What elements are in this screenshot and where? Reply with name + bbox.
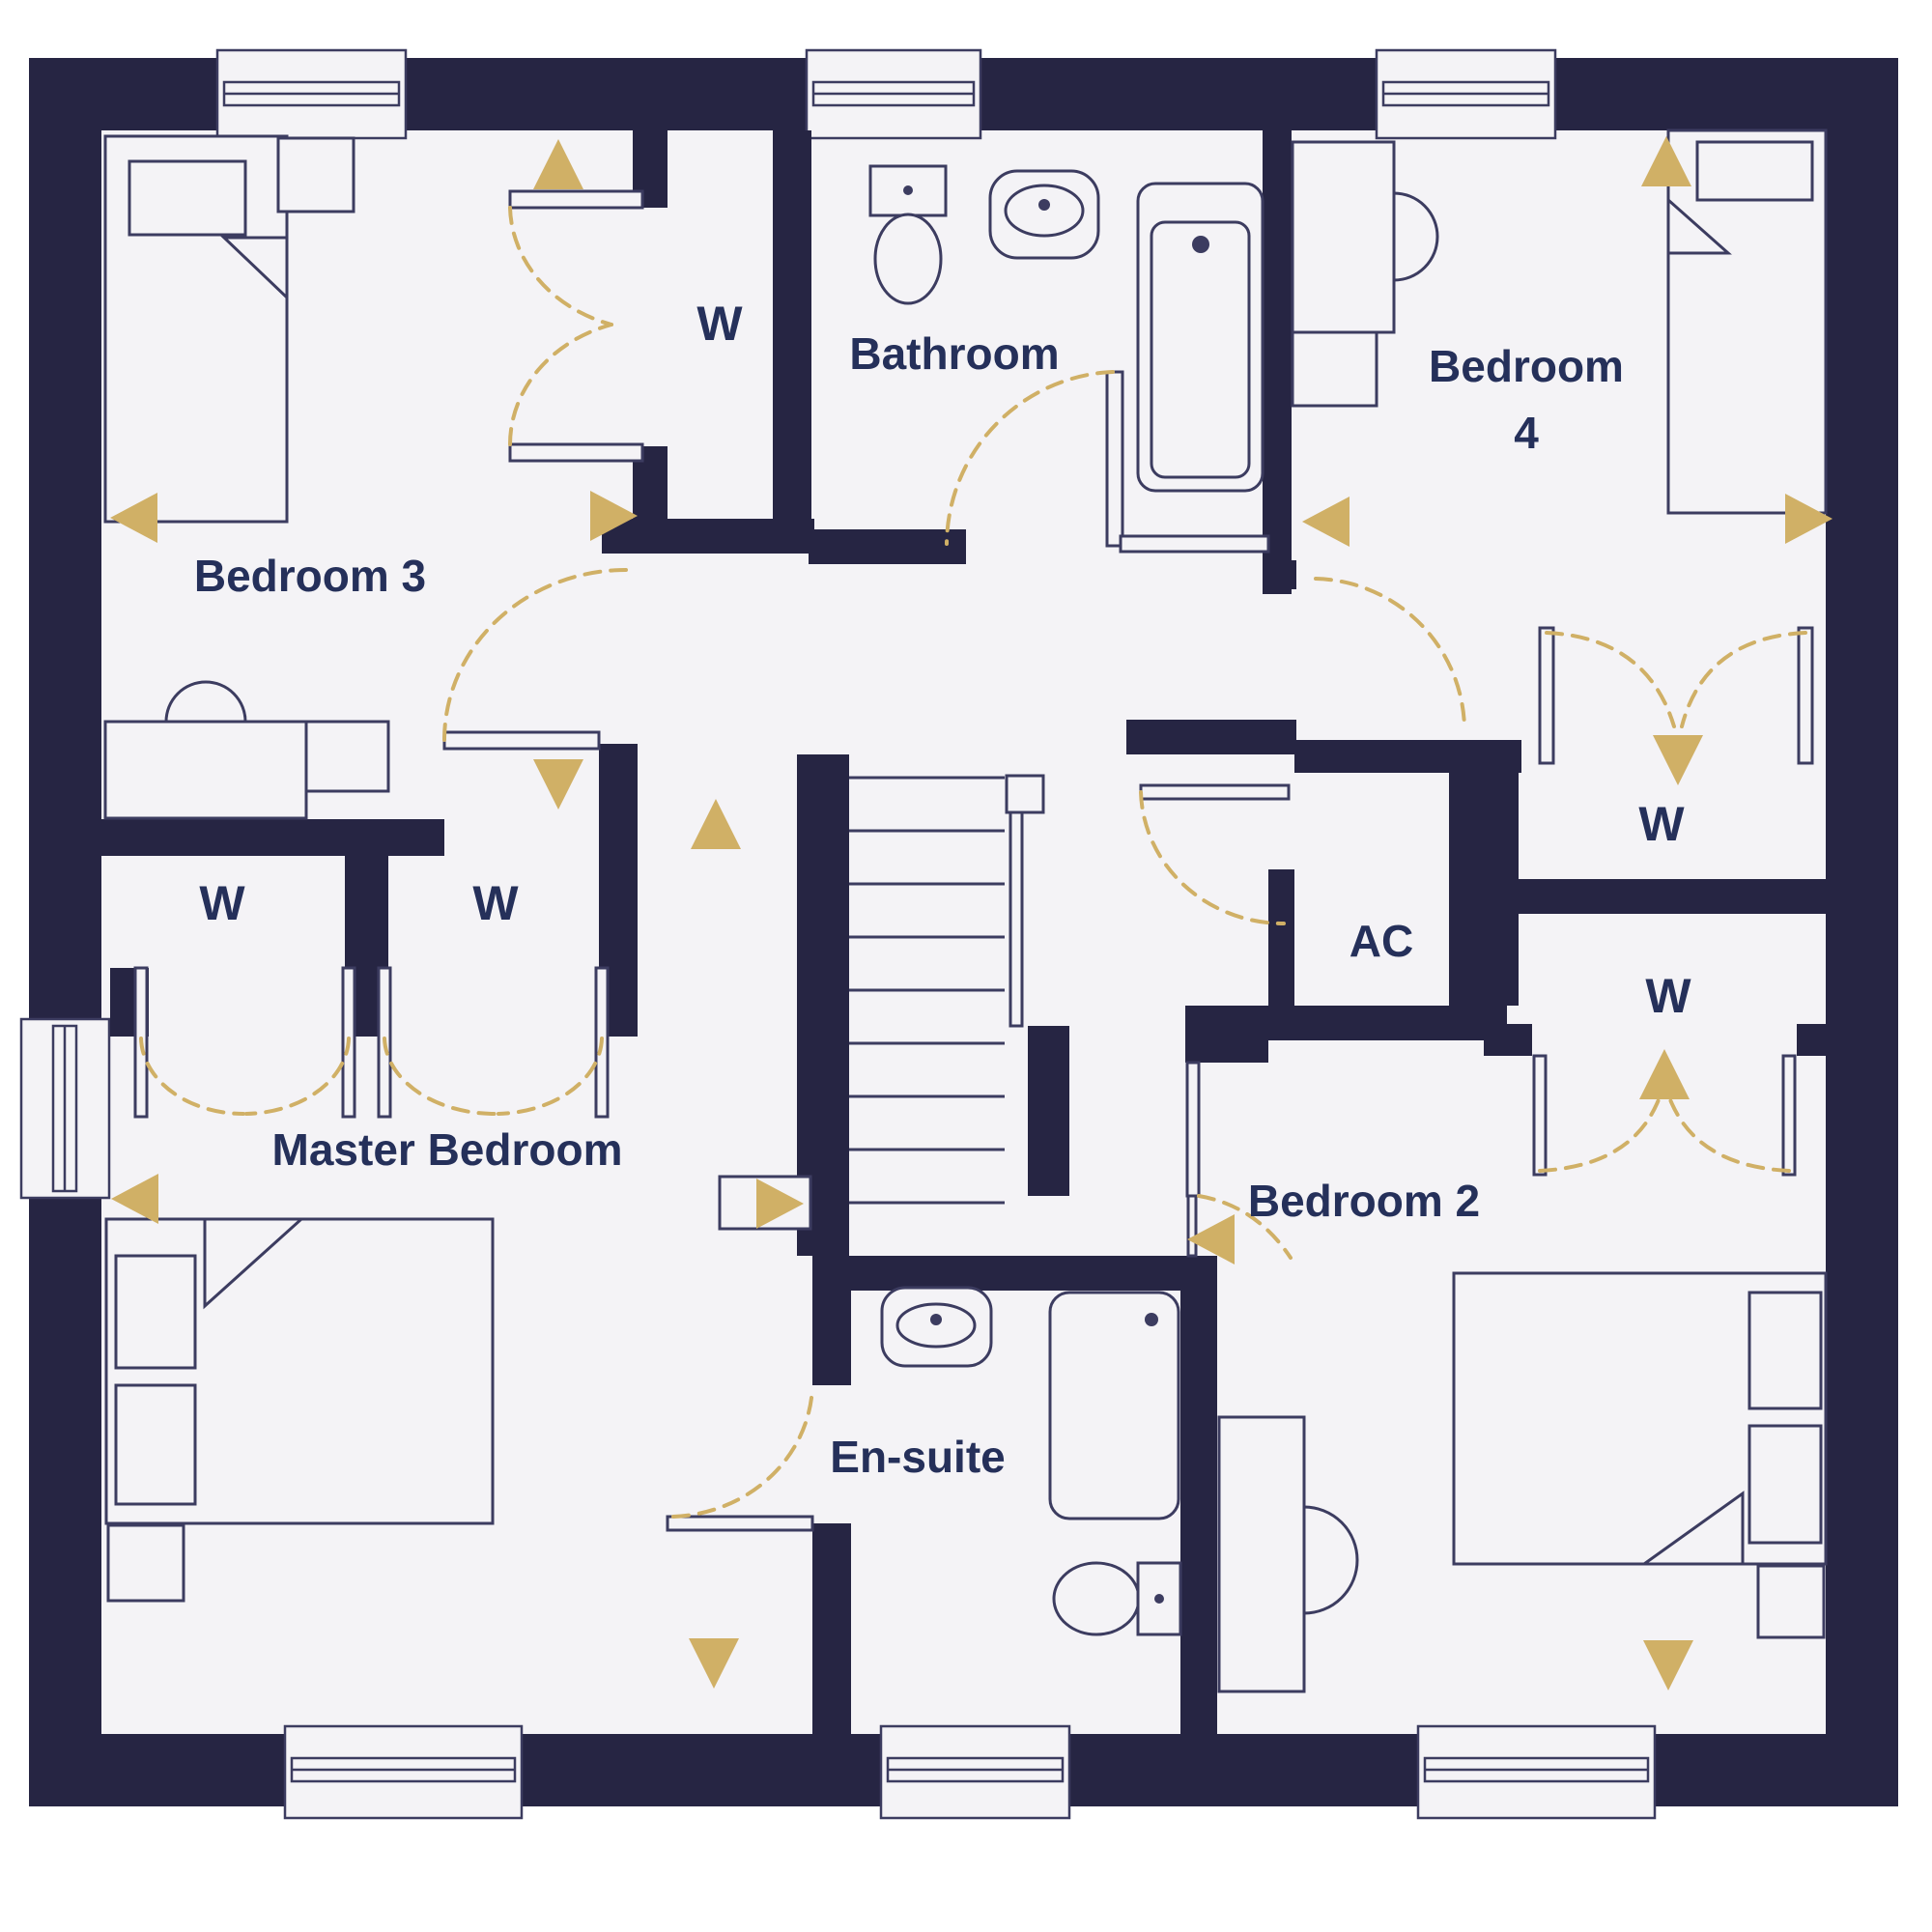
wall-bathroom-left: [773, 130, 811, 554]
bedside-table-bedroom3: [278, 138, 354, 212]
door-leaf-ensuite: [668, 1517, 812, 1530]
window-master-bottom: [285, 1726, 522, 1818]
room-label-wardrobe-right-2: W: [1645, 969, 1691, 1023]
desk-bedroom4: [1293, 142, 1394, 332]
wall-ac-left: [1268, 869, 1294, 1006]
wall-bathroom-right: [1263, 130, 1292, 594]
wall-ensuite-top: [816, 1256, 1217, 1291]
dresser-side-bedroom3: [306, 722, 388, 791]
wall-bedroom3-door-stub: [599, 744, 638, 819]
shower-ensuite: [1050, 1293, 1179, 1519]
door-leaf-bedroom3: [444, 732, 599, 749]
door-leaf-wardrobe1-right: [1799, 628, 1812, 763]
pillow-bedroom4: [1697, 142, 1812, 200]
room-label-bathroom: Bathroom: [849, 328, 1059, 379]
wall-ac-right: [1449, 740, 1486, 1006]
room-label-wardrobe-bed3: W: [696, 297, 743, 351]
bathtub-tap: [1192, 236, 1209, 253]
door-leaf-wardrobe2-right: [1783, 1056, 1795, 1175]
door-leaf-wardrobe1-left: [1540, 628, 1553, 763]
floor-plan-canvas: Bedroom 3WBathroomBedroom4WWMaster Bedro…: [0, 0, 1932, 1932]
room-label-bedroom-4-line2: 4: [1514, 408, 1539, 458]
pillow2-master: [116, 1385, 195, 1504]
room-label-wardrobe-right-1: W: [1638, 797, 1685, 851]
pillow-bedroom3: [129, 161, 245, 235]
wall-ensuite-left-upper: [812, 1256, 851, 1385]
desk-bedroom2: [1219, 1417, 1304, 1691]
window-bathroom-top: [807, 50, 980, 138]
wall-wardrobe2-front-right: [1797, 1024, 1826, 1056]
wall-thin-bedroom2-door: [1188, 1196, 1196, 1256]
window-bedroom4-top: [1377, 50, 1555, 138]
room-label-master-wardrobe-1: W: [199, 876, 245, 930]
door-leaf-wcloset-top: [510, 191, 642, 208]
wall-wardrobes-middle: [1484, 879, 1826, 914]
toilet-bowl-bathroom: [875, 214, 941, 303]
room-label-master-wardrobe-2: W: [472, 876, 519, 930]
desk-side-bedroom4: [1293, 332, 1377, 406]
window-bedroom3-top: [217, 50, 406, 138]
shower-head-ensuite: [1145, 1313, 1158, 1326]
door-leaf-wardrobe2-left: [1534, 1056, 1546, 1175]
sink-tap-bathroom: [1038, 199, 1050, 211]
wall-ensuite-right: [1180, 1256, 1217, 1734]
bedside-table-bedroom2: [1758, 1566, 1824, 1637]
sink-tap-ensuite: [930, 1314, 942, 1325]
window-ensuite-bottom: [881, 1726, 1069, 1818]
wall-bedroom3-bottom-right: [599, 819, 638, 856]
wall-bedroom3-bottom-left: [101, 819, 444, 856]
wall-ensuite-left-lower: [812, 1523, 851, 1734]
window-bedroom2-bottom: [1418, 1726, 1655, 1818]
wall-bed4-door-stub: [1268, 560, 1296, 589]
room-label-en-suite: En-suite: [830, 1432, 1005, 1482]
wall-thin-bathroom-door: [1121, 536, 1268, 552]
toilet-flush-bathroom: [903, 185, 913, 195]
window-master-left: [21, 1019, 109, 1198]
wall-wardrobe2-front-left: [1484, 1024, 1532, 1056]
stair-right-rail: [1010, 812, 1022, 1026]
room-label-bedroom-4-line1: Bedroom: [1429, 341, 1624, 391]
wall-stairs-right-lower: [1028, 1026, 1069, 1196]
dresser-bedroom3: [105, 722, 306, 818]
toilet-flush-ensuite: [1154, 1594, 1164, 1604]
stair-newel: [1007, 776, 1043, 812]
bedside-table-master: [108, 1525, 184, 1601]
room-label-airing-cupboard: AC: [1350, 916, 1413, 966]
floor-plan: Bedroom 3WBathroomBedroom4WWMaster Bedro…: [0, 0, 1932, 1932]
room-label-bedroom-3: Bedroom 3: [194, 551, 426, 601]
door-leaf-bedroom2: [1187, 1063, 1199, 1196]
wall-bedroom2-door-stub: [1185, 1026, 1268, 1063]
pillow1-bedroom2: [1749, 1293, 1821, 1408]
room-label-master-bedroom: Master Bedroom: [272, 1124, 623, 1175]
wall-landing-nook: [1126, 720, 1296, 754]
bathtub-inner: [1151, 222, 1249, 477]
door-leaf-wcloset-bottom: [510, 444, 642, 461]
pillow2-bedroom2: [1749, 1426, 1821, 1543]
door-leaf-ac: [1141, 785, 1289, 799]
pillow1-master: [116, 1256, 195, 1368]
wall-bathroom-bottom: [809, 529, 966, 564]
toilet-bowl-ensuite: [1054, 1563, 1139, 1634]
door-leaf-bathroom: [1107, 372, 1122, 546]
room-label-bedroom-2: Bedroom 2: [1248, 1176, 1480, 1226]
